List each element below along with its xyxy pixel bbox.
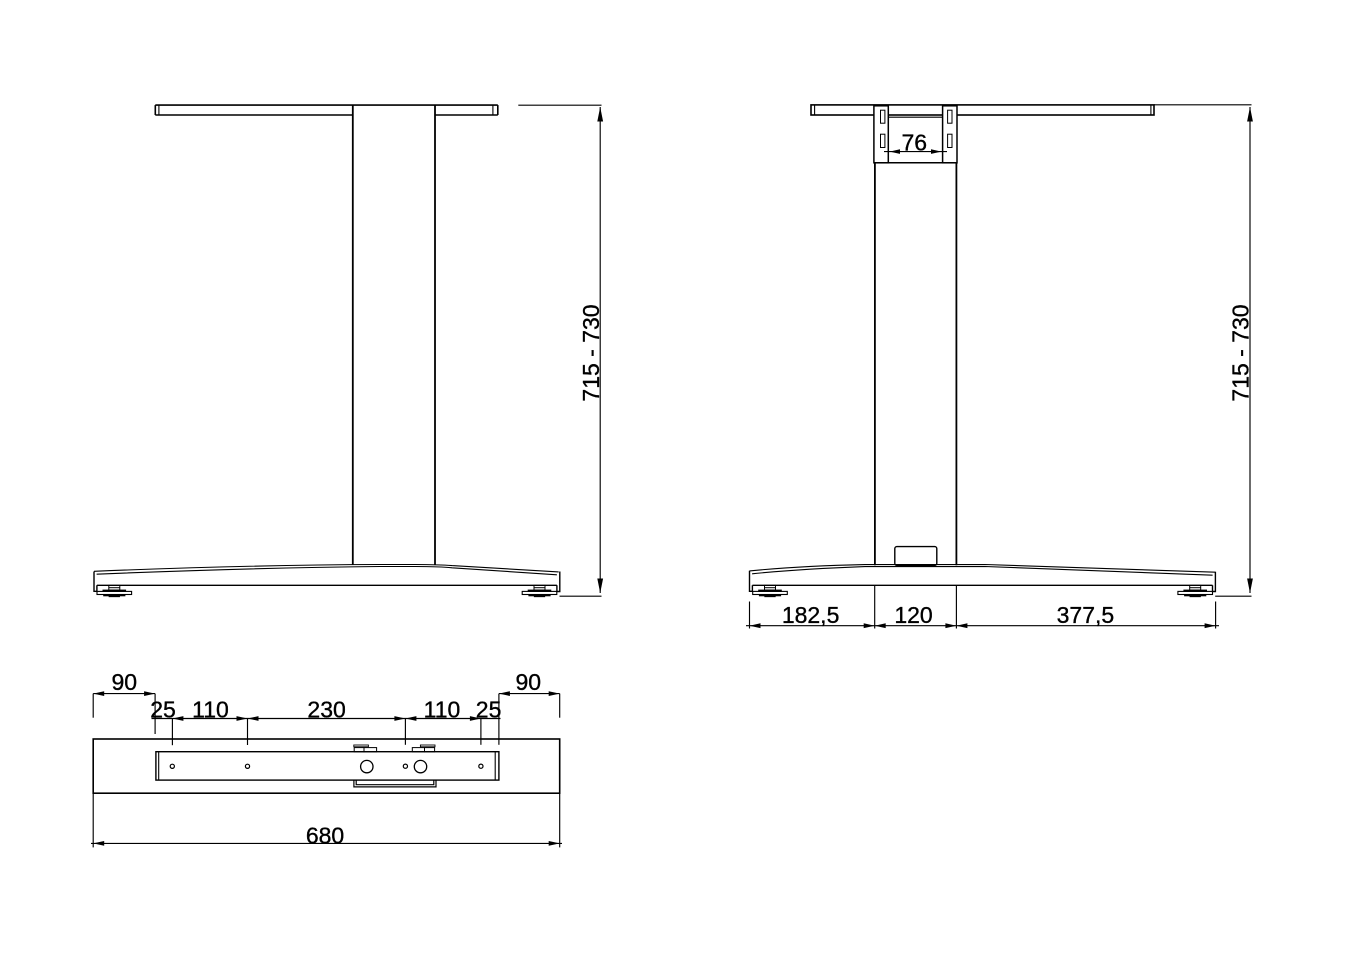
svg-text:110: 110 <box>424 696 461 722</box>
svg-text:680: 680 <box>306 822 344 848</box>
svg-text:25: 25 <box>150 696 176 722</box>
svg-text:76: 76 <box>902 130 928 156</box>
svg-text:120: 120 <box>894 602 932 628</box>
svg-text:715 - 730: 715 - 730 <box>1228 304 1254 401</box>
svg-text:90: 90 <box>516 669 542 695</box>
svg-text:90: 90 <box>112 669 138 695</box>
svg-text:25: 25 <box>476 696 502 722</box>
svg-text:715 - 730: 715 - 730 <box>578 304 604 401</box>
svg-text:230: 230 <box>307 696 345 722</box>
svg-text:377,5: 377,5 <box>1057 602 1115 628</box>
svg-text:182,5: 182,5 <box>782 602 840 628</box>
svg-text:110: 110 <box>192 696 229 722</box>
